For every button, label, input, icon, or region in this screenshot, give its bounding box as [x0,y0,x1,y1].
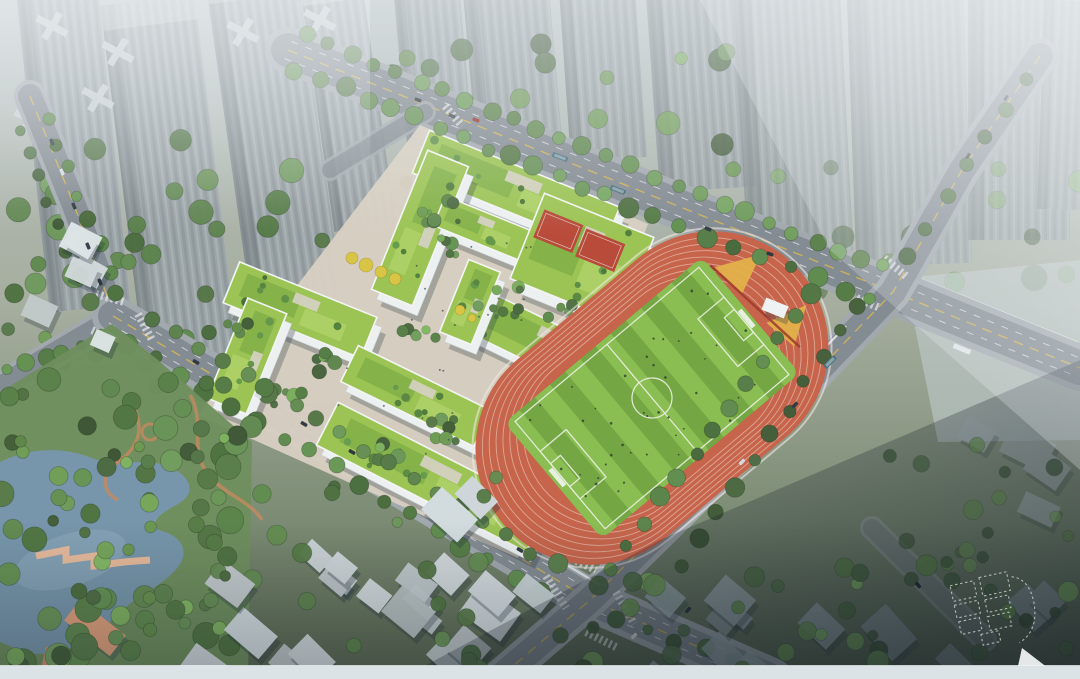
tree [125,233,145,253]
haze-overlay [0,0,370,210]
street-tree [849,298,865,314]
street-tree [797,375,809,387]
tree [431,333,441,343]
roof-tree [392,242,399,249]
bottom-strip [0,666,1080,679]
roof-tree [422,409,428,415]
tree [295,387,307,399]
tree [202,325,217,340]
person-dot [439,369,441,371]
tree [477,489,491,503]
yellow-tree [346,252,358,264]
tree [51,490,67,506]
street-tree [749,454,761,466]
tree [219,433,229,443]
street-tree [2,364,12,374]
roof-tree [236,378,242,384]
tree [473,301,484,312]
tree [102,380,120,398]
person-dot [425,453,427,455]
bottom-vignette [0,520,1080,679]
tree [158,372,178,392]
yellow-tree [455,305,465,315]
tree [516,286,524,294]
tree [141,455,155,469]
tree [319,347,331,359]
tree [490,471,503,484]
roof-tree [415,273,420,278]
street-tree [771,331,784,344]
tree [215,377,232,394]
person-dot [506,242,508,244]
person-dot [442,310,444,312]
tree [193,421,209,437]
person-dot [498,298,500,300]
street-tree [82,293,99,310]
roof-tree [281,295,289,303]
street-tree [302,442,317,457]
roof-tree [401,249,407,255]
street-tree [725,478,745,498]
roof-tree [401,393,410,402]
person-dot [454,324,456,326]
street-tree [403,506,416,519]
rendering-canvas [0,0,1080,679]
tree [197,286,214,303]
person-dot [383,405,385,407]
street-tree [756,355,769,368]
person-dot [451,412,453,414]
street-tree [333,425,346,438]
tree [2,323,15,336]
street-tree [836,282,855,301]
tree [557,303,566,312]
tree [74,469,92,487]
tree [160,450,182,472]
yellow-tree [468,314,476,322]
roof-tree [575,282,581,288]
roof-tree [248,361,255,368]
street-tree [726,240,741,255]
street-tree [279,434,291,446]
street-tree [864,293,876,305]
street-tree [752,249,768,265]
yellow-tree [359,258,373,272]
tree [232,323,243,334]
tree [513,304,524,315]
roof-tree [473,279,479,285]
tree [199,376,214,391]
tree [498,307,508,317]
street-tree [761,425,778,442]
street-tree [222,398,240,416]
tree [242,318,254,330]
street-tree [650,487,669,506]
tree [489,304,497,312]
tree [15,436,27,448]
tree [140,494,158,512]
person-dot [450,431,452,433]
tree [49,467,68,486]
roof-tree [257,287,263,293]
tree [197,469,217,489]
tree [312,364,327,379]
tree [25,273,46,294]
roof-tree [601,269,607,275]
tree [411,330,422,341]
person-dot [470,246,472,248]
street-tree [378,495,391,508]
street-tree [356,445,370,459]
street-tree [691,448,704,461]
roof-tree [334,322,342,330]
street-tree [721,400,738,417]
street-tree [145,312,160,327]
person-dot [442,370,444,372]
street-tree [215,353,231,369]
tree [97,457,116,476]
street-tree [668,469,686,487]
tree [141,245,161,265]
person-dot [523,298,525,300]
street-tree [738,376,754,392]
street-tree [308,411,324,427]
roof-tree [420,472,427,479]
street-tree [801,284,821,304]
tree [439,432,452,445]
tree [228,426,248,446]
tree [121,457,133,469]
tree [0,387,19,406]
roof-tree [436,393,443,400]
street-tree [350,476,369,495]
tree [78,417,96,435]
person-dot [478,316,480,318]
tree [426,417,437,428]
roof-tree [395,400,402,407]
street-tree [329,457,345,473]
tree [134,442,144,452]
tree [446,250,454,258]
tree [397,325,409,337]
street-tree [17,354,35,372]
street-tree [834,324,846,336]
street-tree [788,308,803,323]
tree [5,284,24,303]
roof-tree [393,385,398,390]
tree [17,446,30,459]
person-dot [530,246,532,248]
tree [328,355,342,369]
tree [37,368,61,392]
person-dot [416,265,418,267]
roof-tree [344,438,352,446]
tree [174,399,192,417]
person-dot [411,319,413,321]
street-tree [108,285,124,301]
aerial-campus-rendering [0,0,1080,679]
person-dot [424,288,426,290]
person-dot [487,314,489,316]
tree [223,320,232,329]
street-tree [408,472,421,485]
tree [113,405,137,429]
roof-tree [414,409,422,417]
roof-tree [262,275,267,280]
street-tree [241,367,256,382]
roof-tree [265,318,273,326]
street-tree [704,422,720,438]
tree [215,454,241,480]
tree [543,312,554,323]
street-tree [192,342,206,356]
roof-tree [485,236,494,245]
roof-tree [257,332,263,338]
person-dot [525,247,527,249]
tree [375,442,385,452]
tree [492,285,502,295]
tree [192,499,209,516]
tree [31,256,46,271]
person-dot [422,417,424,419]
person-dot [448,439,450,441]
tree [253,485,272,504]
tree [153,416,178,441]
street-tree [291,399,304,412]
tree [437,235,445,243]
street-tree [785,261,797,273]
tree [422,326,431,335]
tree [191,450,205,464]
tree [315,233,330,248]
yellow-tree [389,273,401,285]
yellow-tree [375,266,387,278]
person-dot [520,319,522,321]
street-tree [381,454,397,470]
person-dot [337,404,339,406]
tree [121,254,136,269]
street-tree [169,325,183,339]
tree [211,490,226,505]
person-dot [346,367,348,369]
tree [324,485,340,501]
